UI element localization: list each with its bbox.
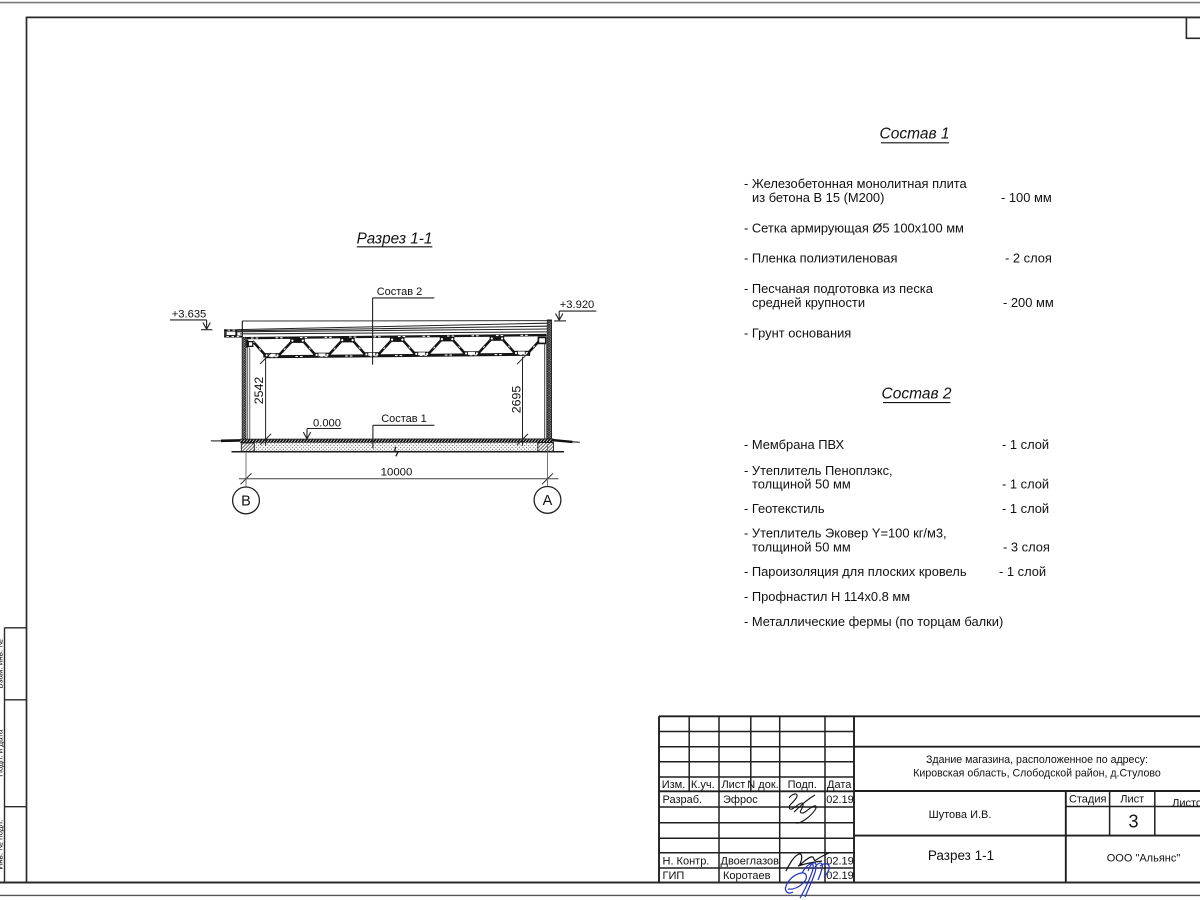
svg-text:толщиной 50 мм: толщиной 50 мм	[752, 540, 851, 555]
svg-text:- Утеплитель Эковер Y=100 кг/м: - Утеплитель Эковер Y=100 кг/м3,	[744, 526, 947, 541]
svg-text:- Профнастил Н 114х0.8 мм: - Профнастил Н 114х0.8 мм	[744, 589, 910, 604]
svg-text:3: 3	[1128, 812, 1138, 832]
svg-text:В: В	[241, 493, 251, 509]
svg-text:Дата: Дата	[827, 779, 852, 791]
svg-text:ГИП: ГИП	[663, 870, 685, 882]
svg-text:Разрез 1-1: Разрез 1-1	[357, 231, 433, 248]
svg-text:Листов: Листов	[1172, 797, 1200, 809]
svg-text:02.19: 02.19	[826, 855, 854, 867]
svg-text:+3.635: +3.635	[172, 308, 207, 320]
svg-text:Стадия: Стадия	[1069, 793, 1107, 805]
svg-text:- 3 слоя: - 3 слоя	[1003, 540, 1050, 555]
svg-text:- Песчаная подготовка из песка: - Песчаная подготовка из песка	[744, 281, 934, 296]
svg-text:2695: 2695	[509, 386, 523, 414]
svg-text:Эфрос: Эфрос	[723, 794, 758, 806]
svg-text:Состав 1: Состав 1	[381, 413, 427, 425]
svg-text:- Сетка армирующая Ø5 100х100: - Сетка армирующая Ø5 100х100 мм	[744, 221, 964, 236]
svg-text:- Железобетонная монолитная п: - Железобетонная монолитная плита	[744, 176, 968, 191]
svg-text:А: А	[543, 493, 553, 509]
svg-text:средней крупности: средней крупности	[752, 295, 865, 310]
svg-text:Взам. инв. №: Взам. инв. №	[0, 639, 4, 689]
svg-text:Состав 1: Состав 1	[880, 125, 950, 142]
svg-text:- 1 слой: - 1 слой	[1002, 501, 1049, 516]
svg-text:Лист: Лист	[1120, 793, 1144, 805]
svg-text:10000: 10000	[381, 467, 413, 479]
svg-text:2542: 2542	[252, 377, 266, 405]
svg-text:+3.920: +3.920	[560, 299, 595, 311]
svg-text:- Пленка полиэтиленовая: - Пленка полиэтиленовая	[744, 251, 897, 266]
svg-text:Здание магазина, расположенное: Здание магазина, расположенное по адресу…	[926, 754, 1148, 766]
svg-text:Изм.: Изм.	[662, 779, 686, 791]
svg-text:- 2 слоя: - 2 слоя	[1005, 251, 1052, 266]
svg-text:- 1 слой: - 1 слой	[999, 564, 1046, 579]
svg-text:Разрез 1-1: Разрез 1-1	[928, 848, 994, 863]
svg-text:02.19: 02.19	[826, 870, 854, 882]
svg-text:- 200 мм: - 200 мм	[1003, 295, 1054, 310]
svg-text:- Пароизоляция для плоских кро: - Пароизоляция для плоских кровель	[744, 564, 967, 579]
svg-text:Лист: Лист	[721, 779, 745, 791]
svg-text:Н. Контр.: Н. Контр.	[663, 855, 710, 867]
svg-text:толщиной 50 мм: толщиной 50 мм	[752, 477, 851, 492]
svg-text:- 1 слой: - 1 слой	[1002, 437, 1049, 452]
svg-text:ООО "Альянс": ООО "Альянс"	[1107, 852, 1181, 864]
svg-text:Кировская область, Слободской: Кировская область, Слободской район, д.С…	[913, 767, 1161, 779]
svg-text:02.19: 02.19	[826, 794, 854, 806]
svg-text:Двоеглазов: Двоеглазов	[721, 855, 780, 867]
svg-text:- 1 слой: - 1 слой	[1002, 477, 1049, 492]
svg-text:- Геотекстиль: - Геотекстиль	[744, 501, 825, 516]
svg-text:Состав 2: Состав 2	[882, 386, 952, 403]
svg-text:Состав 2: Состав 2	[377, 286, 423, 298]
svg-text:из бетона В 15 (М200): из бетона В 15 (М200)	[752, 190, 884, 205]
svg-text:Коротаев: Коротаев	[723, 870, 771, 882]
svg-text:Разраб.: Разраб.	[663, 794, 703, 806]
svg-text:- Металлические фермы (по торц: - Металлические фермы (по торцам балки)	[744, 614, 1003, 629]
svg-text:Подп. и дата: Подп. и дата	[0, 729, 4, 777]
svg-text:Подп.: Подп.	[788, 779, 817, 791]
svg-text:Шутова И.В.: Шутова И.В.	[929, 809, 992, 821]
svg-text:0.000: 0.000	[313, 417, 341, 429]
svg-text:Инв. № подл.: Инв. № подл.	[0, 820, 4, 870]
svg-text:К.уч.: К.уч.	[691, 779, 715, 791]
svg-text:- Мембрана ПВХ: - Мембрана ПВХ	[744, 437, 845, 452]
svg-text:- 100 мм: - 100 мм	[1001, 190, 1052, 205]
svg-text:N док.: N док.	[747, 779, 778, 791]
svg-text:- Грунт основания: - Грунт основания	[744, 326, 851, 341]
